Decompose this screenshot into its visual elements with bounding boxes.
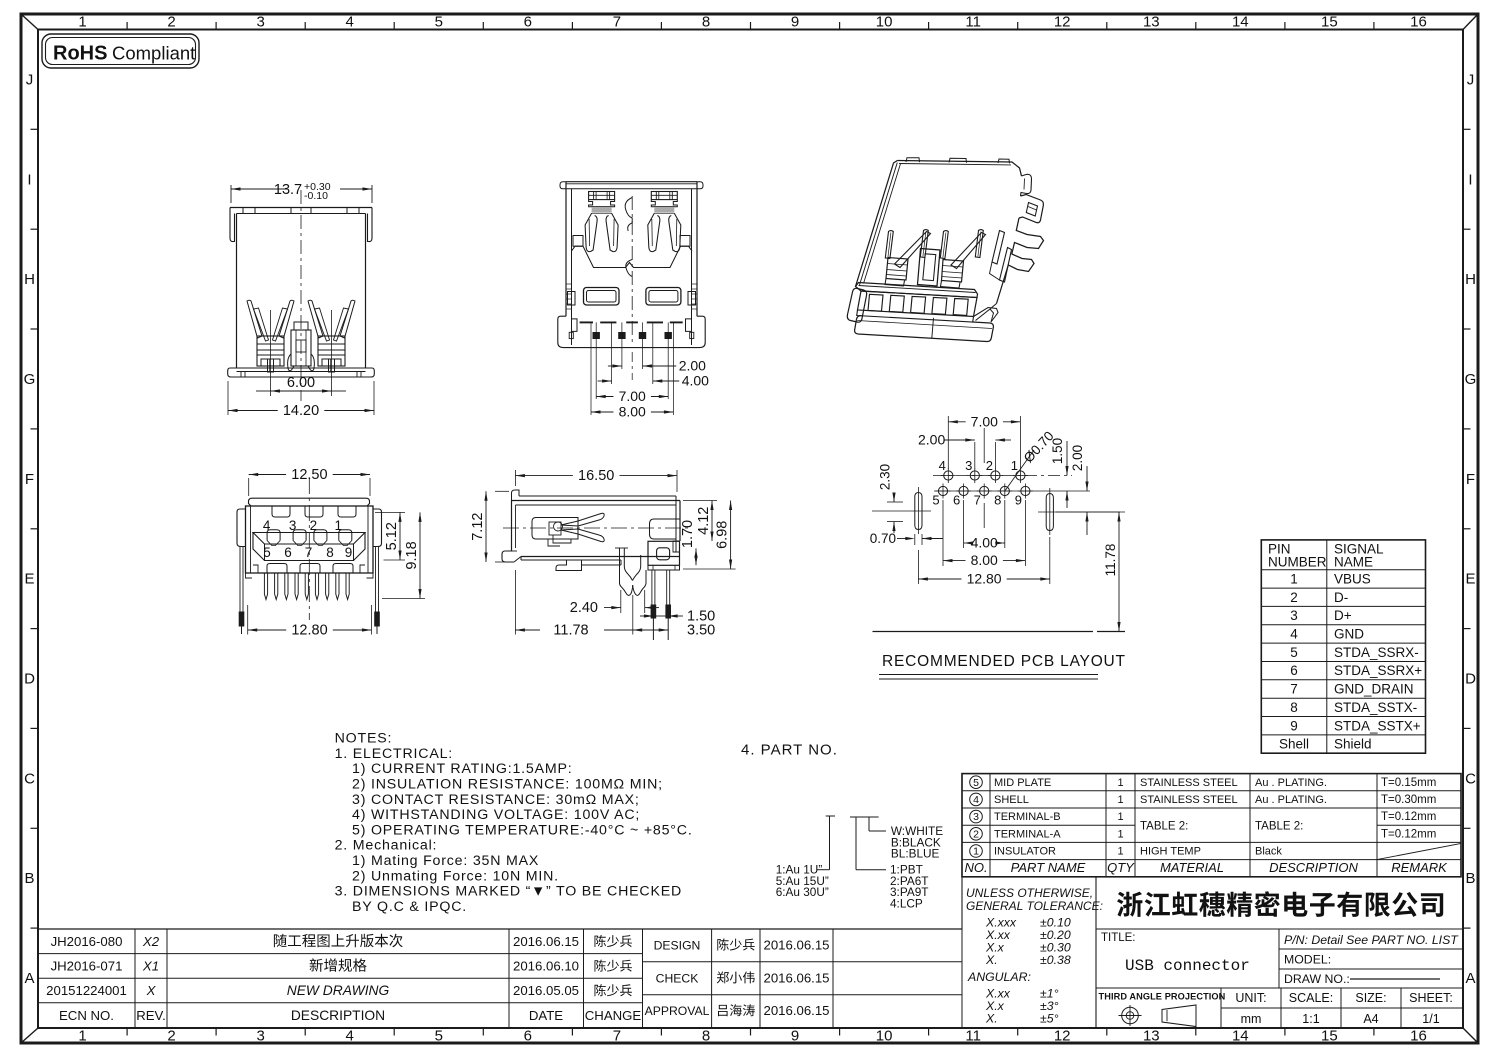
svg-text:TERMINAL-B: TERMINAL-B <box>994 811 1061 823</box>
svg-text:X.: X. <box>985 1012 998 1026</box>
svg-text:9.18: 9.18 <box>404 541 420 569</box>
svg-text:G: G <box>1465 371 1477 388</box>
svg-text:1: 1 <box>1117 794 1123 806</box>
svg-text:Au . PLATING.: Au . PLATING. <box>1255 777 1327 789</box>
svg-text:B: B <box>1465 870 1475 887</box>
svg-text:NEW DRAWING: NEW DRAWING <box>287 983 390 998</box>
svg-text:Shield: Shield <box>1334 737 1372 752</box>
svg-text:1.50: 1.50 <box>1050 438 1065 464</box>
svg-text:I: I <box>1468 171 1472 188</box>
svg-text:5: 5 <box>263 545 271 560</box>
svg-text:13.7: 13.7 <box>274 182 302 198</box>
svg-text:STDA_SSTX-: STDA_SSTX- <box>1334 700 1417 715</box>
svg-text:4.12: 4.12 <box>696 507 712 535</box>
svg-text:A4: A4 <box>1363 1012 1378 1026</box>
svg-text:1: 1 <box>973 846 979 858</box>
svg-text:6:Au 30U”: 6:Au 30U” <box>776 885 829 899</box>
svg-text:X.: X. <box>985 953 998 967</box>
svg-text:2: 2 <box>973 828 979 840</box>
svg-text:12.80: 12.80 <box>291 623 327 639</box>
svg-text:GND_DRAIN: GND_DRAIN <box>1334 682 1414 697</box>
svg-text:1. ELECTRICAL:: 1. ELECTRICAL: <box>335 746 453 762</box>
svg-text:ANGULAR:: ANGULAR: <box>967 970 1031 984</box>
svg-text:2: 2 <box>167 1028 175 1045</box>
svg-text:2016.06.15: 2016.06.15 <box>763 1003 829 1018</box>
svg-text:H: H <box>1465 271 1476 288</box>
svg-text:12.50: 12.50 <box>291 467 327 483</box>
svg-text:3: 3 <box>965 458 972 473</box>
svg-text:8.00: 8.00 <box>619 404 646 420</box>
svg-text:1) CURRENT RATING:1.5AMP:: 1) CURRENT RATING:1.5AMP: <box>352 761 573 777</box>
svg-text:7: 7 <box>613 14 621 31</box>
svg-text:2016.06.15: 2016.06.15 <box>763 970 829 985</box>
svg-text:3) CONTACT RESISTANCE: 30mΩ MA: 3) CONTACT RESISTANCE: 30mΩ MAX; <box>352 792 640 808</box>
svg-text:9: 9 <box>791 1028 799 1045</box>
svg-text:±0.38: ±0.38 <box>1040 953 1071 967</box>
svg-text:7: 7 <box>305 545 313 560</box>
svg-text:Black: Black <box>1255 846 1282 858</box>
svg-text:5.12: 5.12 <box>384 522 400 550</box>
svg-text:2.00: 2.00 <box>1070 445 1085 471</box>
svg-text:5: 5 <box>435 1028 443 1045</box>
svg-text:12: 12 <box>1054 14 1071 31</box>
svg-text:5) OPERATING TEMPERATURE:-40°C: 5) OPERATING TEMPERATURE:-40°C ~ +85°C. <box>352 822 693 838</box>
svg-text:X1: X1 <box>142 959 159 974</box>
svg-text:1: 1 <box>78 14 86 31</box>
svg-text:6: 6 <box>524 1028 532 1045</box>
svg-text:MID PLATE: MID PLATE <box>994 777 1051 789</box>
svg-text:F: F <box>1466 471 1475 488</box>
svg-text:GENERAL TOLERANCE:: GENERAL TOLERANCE: <box>966 899 1103 913</box>
svg-text:A: A <box>1465 970 1475 987</box>
svg-text:1: 1 <box>1117 828 1123 840</box>
svg-text:16: 16 <box>1410 1028 1427 1045</box>
svg-text:STDA_SSRX-: STDA_SSRX- <box>1334 645 1419 660</box>
svg-text:CHANGE: CHANGE <box>585 1008 642 1023</box>
svg-text:SIZE:: SIZE: <box>1355 991 1386 1005</box>
svg-text:16: 16 <box>1410 14 1427 31</box>
svg-text:12: 12 <box>1054 1028 1071 1045</box>
svg-text:Au . PLATING.: Au . PLATING. <box>1255 794 1327 806</box>
svg-text:UNLESS OTHERWISE,: UNLESS OTHERWISE, <box>966 886 1093 900</box>
svg-text:Shell: Shell <box>1279 737 1309 752</box>
svg-text:2.00: 2.00 <box>918 432 945 448</box>
svg-text:5: 5 <box>1290 645 1298 660</box>
svg-text:0.70: 0.70 <box>870 531 896 546</box>
svg-text:6: 6 <box>1290 663 1298 678</box>
svg-text:11: 11 <box>965 14 981 31</box>
svg-text:7.00: 7.00 <box>619 388 646 404</box>
svg-text:1/1: 1/1 <box>1422 1012 1439 1026</box>
svg-text:P/N: Detail See PART NO. L: P/N: Detail See PART NO. LIST <box>1284 933 1459 947</box>
svg-text:JH2016-080: JH2016-080 <box>51 934 123 949</box>
svg-text:UNIT:: UNIT: <box>1235 991 1266 1005</box>
svg-text:2: 2 <box>1290 590 1298 605</box>
svg-text:STDA_SSRX+: STDA_SSRX+ <box>1334 663 1422 678</box>
svg-text:NO.: NO. <box>964 860 987 875</box>
svg-text:DRAW NO.:: DRAW NO.: <box>1284 972 1350 986</box>
svg-text:mm: mm <box>1241 1012 1262 1026</box>
svg-text:7: 7 <box>974 493 981 508</box>
svg-text:9: 9 <box>791 14 799 31</box>
svg-text:4: 4 <box>939 458 946 473</box>
svg-text:2: 2 <box>310 518 318 533</box>
svg-text:1: 1 <box>1117 777 1123 789</box>
svg-text:INSULATOR: INSULATOR <box>994 846 1056 858</box>
svg-text:4: 4 <box>346 14 354 31</box>
svg-text:2016.05.05: 2016.05.05 <box>513 983 579 998</box>
svg-text:5: 5 <box>932 493 939 508</box>
svg-text:APPROVAL: APPROVAL <box>645 1004 710 1018</box>
svg-text:T=0.30mm: T=0.30mm <box>1381 794 1436 806</box>
svg-text:4: 4 <box>263 518 271 533</box>
svg-text:T=0.12mm: T=0.12mm <box>1381 828 1436 840</box>
svg-text:4: 4 <box>1290 627 1298 642</box>
svg-text:6.00: 6.00 <box>287 375 315 391</box>
svg-text:NUMBER: NUMBER <box>1268 555 1327 570</box>
svg-text:4.00: 4.00 <box>682 373 709 389</box>
svg-text:NAME: NAME <box>1334 555 1373 570</box>
svg-text:4: 4 <box>973 794 979 806</box>
svg-text:ECN NO.: ECN NO. <box>59 1008 114 1023</box>
svg-text:3: 3 <box>257 14 265 31</box>
svg-text:TABLE 2:: TABLE 2: <box>1140 821 1188 833</box>
svg-text:5: 5 <box>435 14 443 31</box>
svg-text:H: H <box>24 271 35 288</box>
svg-text:TERMINAL-A: TERMINAL-A <box>994 828 1061 840</box>
svg-text:E: E <box>24 571 34 588</box>
svg-text:8: 8 <box>1290 700 1298 715</box>
svg-text:I: I <box>27 171 31 188</box>
svg-text:A: A <box>24 970 34 987</box>
svg-text:2: 2 <box>167 14 175 31</box>
svg-text:10: 10 <box>876 1028 893 1045</box>
svg-text:1: 1 <box>1011 458 1018 473</box>
svg-text:DESIGN: DESIGN <box>654 939 701 953</box>
svg-text:15: 15 <box>1321 1028 1338 1045</box>
svg-text:D: D <box>24 671 35 688</box>
svg-text:15: 15 <box>1321 14 1338 31</box>
svg-text:Compliant: Compliant <box>112 43 195 64</box>
svg-text:3: 3 <box>289 518 297 533</box>
svg-text:4.00: 4.00 <box>971 535 998 551</box>
svg-text:6: 6 <box>284 545 292 560</box>
svg-text:2) Unmating Force: 10N MIN.: 2) Unmating Force: 10N MIN. <box>352 868 559 884</box>
svg-text:REV.: REV. <box>136 1008 166 1023</box>
svg-text:14: 14 <box>1232 14 1249 31</box>
svg-text:8: 8 <box>994 493 1001 508</box>
svg-text:2.30: 2.30 <box>878 464 893 490</box>
svg-text:C: C <box>24 770 35 787</box>
svg-text:REMARK: REMARK <box>1391 860 1448 875</box>
svg-text:T=0.12mm: T=0.12mm <box>1381 811 1436 823</box>
svg-text:MODEL:: MODEL: <box>1284 953 1331 967</box>
svg-text:BY Q.C & IPQC.: BY Q.C & IPQC. <box>352 899 467 915</box>
svg-text:RoHS: RoHS <box>53 43 107 65</box>
svg-text:11.78: 11.78 <box>553 623 588 639</box>
svg-text:1: 1 <box>78 1028 86 1045</box>
svg-text:J: J <box>26 71 34 88</box>
svg-text:2: 2 <box>986 458 993 473</box>
svg-text:3: 3 <box>1290 608 1298 623</box>
svg-text:9: 9 <box>1290 718 1298 733</box>
svg-text:SHEET:: SHEET: <box>1409 991 1453 1005</box>
svg-text:1: 1 <box>1290 572 1298 587</box>
svg-text:T=0.15mm: T=0.15mm <box>1381 777 1436 789</box>
svg-text:6: 6 <box>953 493 960 508</box>
svg-text:F: F <box>25 471 34 488</box>
svg-text:1: 1 <box>1117 846 1123 858</box>
svg-text:9: 9 <box>345 545 353 560</box>
svg-text:1.70: 1.70 <box>680 520 696 548</box>
svg-text:3.50: 3.50 <box>687 623 715 639</box>
svg-text:7.12: 7.12 <box>470 513 486 541</box>
svg-text:STDA_SSTX+: STDA_SSTX+ <box>1334 718 1421 733</box>
svg-text:C: C <box>1465 770 1476 787</box>
svg-text:GND: GND <box>1334 627 1364 642</box>
svg-text:STAINLESS STEEL: STAINLESS STEEL <box>1140 794 1238 806</box>
svg-text:8: 8 <box>702 14 710 31</box>
svg-text:2016.06.10: 2016.06.10 <box>513 959 579 974</box>
svg-text:VBUS: VBUS <box>1334 572 1371 587</box>
svg-text:7.00: 7.00 <box>971 413 998 429</box>
svg-text:D-: D- <box>1334 590 1348 605</box>
svg-text:G: G <box>24 371 36 388</box>
svg-text:6.98: 6.98 <box>715 521 731 549</box>
svg-text:STAINLESS STEEL: STAINLESS STEEL <box>1140 777 1238 789</box>
svg-text:2016.06.15: 2016.06.15 <box>763 938 829 953</box>
svg-text:1) Mating Force: 35N MAX: 1) Mating Force: 35N MAX <box>352 853 539 869</box>
svg-text:DATE: DATE <box>529 1008 563 1023</box>
svg-text:X2: X2 <box>142 934 160 949</box>
svg-text:11: 11 <box>965 1028 981 1045</box>
svg-text:7: 7 <box>613 1028 621 1045</box>
svg-text:DESCRIPTION: DESCRIPTION <box>291 1008 385 1023</box>
svg-text:D+: D+ <box>1334 608 1352 623</box>
svg-text:2.40: 2.40 <box>570 600 598 616</box>
svg-text:TABLE 2:: TABLE 2: <box>1255 821 1303 833</box>
svg-text:12.80: 12.80 <box>967 571 1002 587</box>
svg-text:BL:BLUE: BL:BLUE <box>891 847 940 861</box>
svg-text:14.20: 14.20 <box>283 403 319 419</box>
svg-text:THIRD ANGLE PROJECTION: THIRD ANGLE PROJECTION <box>1099 992 1226 1002</box>
svg-text:3: 3 <box>973 811 979 823</box>
svg-text:4:LCP: 4:LCP <box>890 896 923 910</box>
svg-text:J: J <box>1467 71 1475 88</box>
svg-text:13: 13 <box>1143 14 1160 31</box>
svg-text:QTY: QTY <box>1107 860 1135 875</box>
svg-text:TITLE:: TITLE: <box>1101 932 1136 944</box>
svg-text:USB connector: USB connector <box>1125 957 1250 975</box>
svg-text:16.50: 16.50 <box>578 468 614 484</box>
svg-text:2. Mechanical:: 2. Mechanical: <box>335 838 438 854</box>
svg-text:RECOMMENDED PCB LAYOUT: RECOMMENDED PCB LAYOUT <box>882 653 1126 670</box>
svg-text:2) INSULATION RESISTANCE: 100M: 2) INSULATION RESISTANCE: 100MΩ MIN; <box>352 777 663 793</box>
svg-text:8: 8 <box>702 1028 710 1045</box>
svg-text:9: 9 <box>1015 493 1022 508</box>
svg-text:CHECK: CHECK <box>656 971 699 985</box>
svg-text:-0.10: -0.10 <box>304 190 328 202</box>
svg-text:13: 13 <box>1143 1028 1160 1045</box>
svg-text:JH2016-071: JH2016-071 <box>51 959 123 974</box>
svg-text:±5°: ±5° <box>1040 1012 1059 1026</box>
svg-text:1: 1 <box>335 518 343 533</box>
svg-text:10: 10 <box>876 14 893 31</box>
svg-text:2.00: 2.00 <box>679 358 706 374</box>
svg-text:HIGH TEMP: HIGH TEMP <box>1140 846 1201 858</box>
svg-text:PART NAME: PART NAME <box>1011 860 1086 875</box>
svg-text:E: E <box>1465 571 1475 588</box>
svg-text:1:1: 1:1 <box>1302 1012 1319 1026</box>
svg-text:NOTES:: NOTES: <box>335 731 393 747</box>
svg-text:SHELL: SHELL <box>994 794 1029 806</box>
svg-text:D: D <box>1465 671 1476 688</box>
svg-text:14: 14 <box>1232 1028 1249 1045</box>
svg-text:2016.06.15: 2016.06.15 <box>513 934 579 949</box>
svg-text:4) WITHSTANDING VOLTAGE: 100V: 4) WITHSTANDING VOLTAGE: 100V AC; <box>352 807 640 823</box>
svg-text:11.78: 11.78 <box>1103 544 1118 577</box>
svg-text:SCALE:: SCALE: <box>1289 991 1333 1005</box>
svg-text:20151224001: 20151224001 <box>46 983 127 998</box>
svg-text:3: 3 <box>257 1028 265 1045</box>
svg-text:4. PART NO.: 4. PART NO. <box>741 742 838 759</box>
svg-text:DESCRIPTION: DESCRIPTION <box>1269 860 1358 875</box>
svg-text:1: 1 <box>1117 811 1123 823</box>
svg-text:5: 5 <box>973 777 979 789</box>
svg-text:8.00: 8.00 <box>971 552 998 568</box>
svg-text:7: 7 <box>1290 682 1298 697</box>
svg-text:6: 6 <box>524 14 532 31</box>
svg-text:8: 8 <box>326 545 334 560</box>
svg-text:X: X <box>146 983 157 998</box>
svg-text:B: B <box>24 870 34 887</box>
svg-text:3. DIMENSIONS MARKED “▼” TO BE: 3. DIMENSIONS MARKED “▼” TO BE CHECKED <box>335 884 682 900</box>
svg-text:MATERIAL: MATERIAL <box>1160 860 1224 875</box>
svg-text:4: 4 <box>346 1028 354 1045</box>
